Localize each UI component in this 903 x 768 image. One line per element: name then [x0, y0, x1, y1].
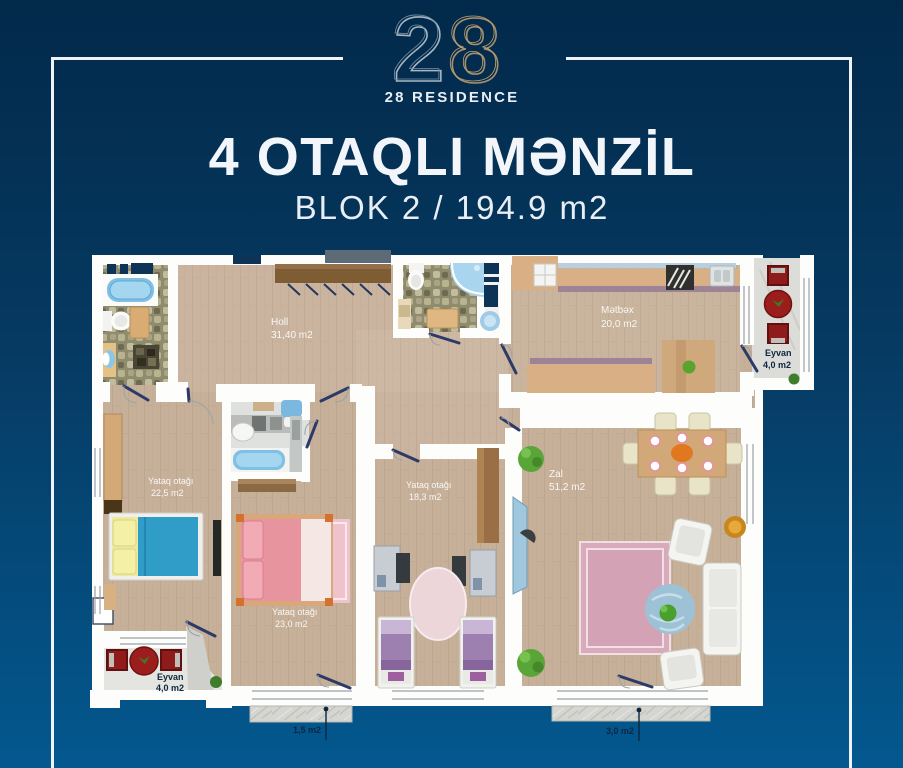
svg-text:51,2 m2: 51,2 m2 [549, 482, 586, 493]
svg-text:31,40 m2: 31,40 m2 [271, 330, 313, 341]
svg-text:3,0 m2: 3,0 m2 [606, 726, 634, 736]
svg-text:1,5 m2: 1,5 m2 [293, 725, 321, 735]
svg-text:Zal: Zal [549, 469, 563, 480]
svg-text:23,0 m2: 23,0 m2 [275, 619, 308, 629]
svg-text:4,0 m2: 4,0 m2 [156, 683, 184, 693]
svg-text:Holl: Holl [271, 317, 288, 328]
svg-text:Yataq otağı: Yataq otağı [148, 476, 193, 486]
svg-text:4 OTAQLI MƏNZİL: 4 OTAQLI MƏNZİL [209, 127, 696, 187]
svg-text:18,3 m2: 18,3 m2 [409, 492, 442, 502]
svg-text:Eyvan: Eyvan [157, 672, 184, 682]
svg-text:Yataq otağı: Yataq otağı [406, 480, 451, 490]
svg-text:Mətbəx: Mətbəx [601, 305, 634, 316]
svg-text:Yataq otağı: Yataq otağı [272, 607, 317, 617]
svg-text:Eyvan: Eyvan [765, 348, 792, 358]
svg-text:20,0 m2: 20,0 m2 [601, 319, 638, 330]
svg-text:22,5 m2: 22,5 m2 [151, 488, 184, 498]
svg-text:8: 8 [447, 0, 498, 100]
svg-text:BLOK 2 / 194.9 m2: BLOK 2 / 194.9 m2 [295, 189, 610, 226]
svg-text:4,0 m2: 4,0 m2 [763, 360, 791, 370]
svg-text:28 RESIDENCE: 28 RESIDENCE [385, 89, 520, 106]
svg-text:2: 2 [391, 0, 442, 99]
